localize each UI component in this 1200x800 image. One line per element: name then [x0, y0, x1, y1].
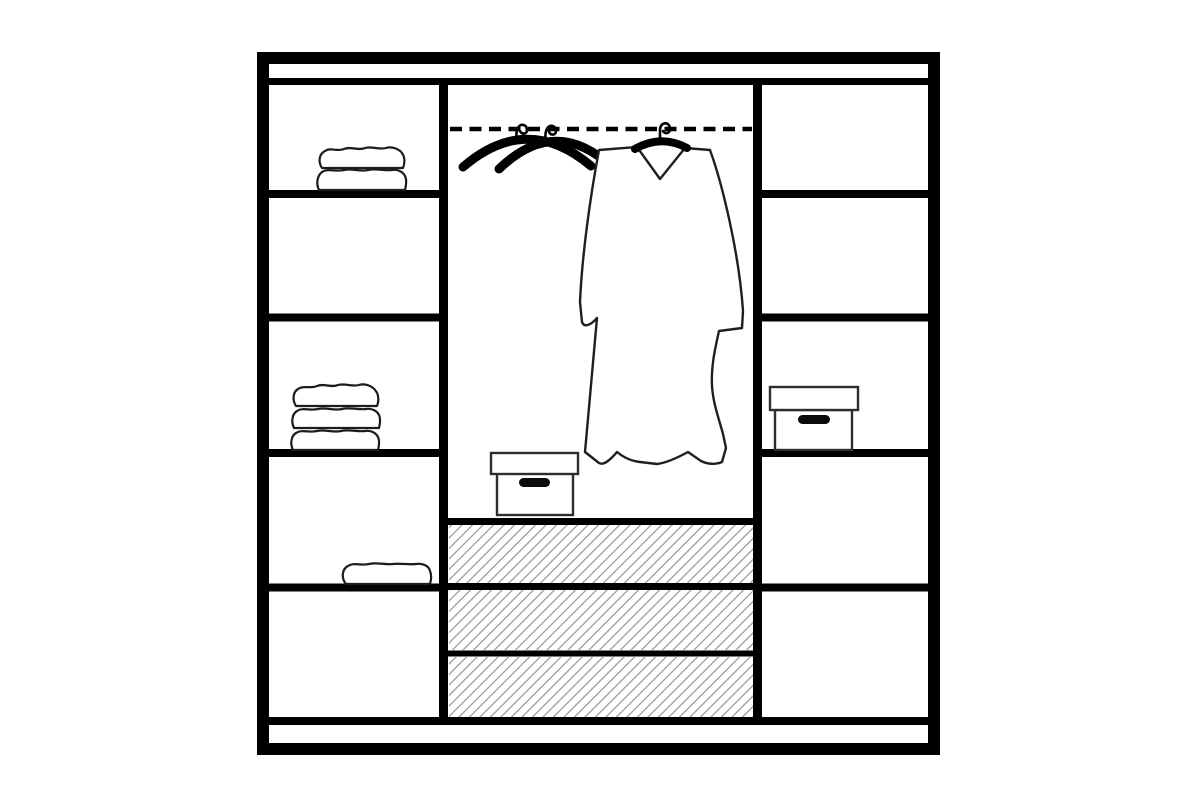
drawer-stack [444, 522, 758, 718]
drawer-1 [449, 525, 753, 583]
storage-box-right [770, 387, 858, 450]
towel-layer [291, 430, 379, 450]
box-lid [770, 387, 858, 410]
garment-hanger-bar [635, 141, 687, 149]
towel-layer [317, 169, 406, 190]
box-handle-slot [519, 478, 550, 487]
towel-layer [320, 147, 405, 168]
hanging-garment [580, 123, 743, 464]
storage-box-center [491, 453, 578, 515]
drawer-2 [449, 590, 753, 650]
garment-outline [580, 147, 743, 464]
wardrobe-diagram-canvas [0, 0, 1200, 800]
folded-towel-lower [343, 563, 431, 584]
towel-stack-top [317, 147, 406, 190]
towel-stack-middle [291, 384, 380, 450]
drawer-3 [449, 657, 753, 717]
towel-layer [292, 408, 380, 428]
hanging-section [450, 123, 752, 515]
wardrobe-diagram [0, 0, 1200, 800]
towel-layer [294, 384, 379, 406]
towel-layer [343, 563, 431, 584]
box-handle-slot [798, 415, 830, 424]
box-lid [491, 453, 578, 474]
